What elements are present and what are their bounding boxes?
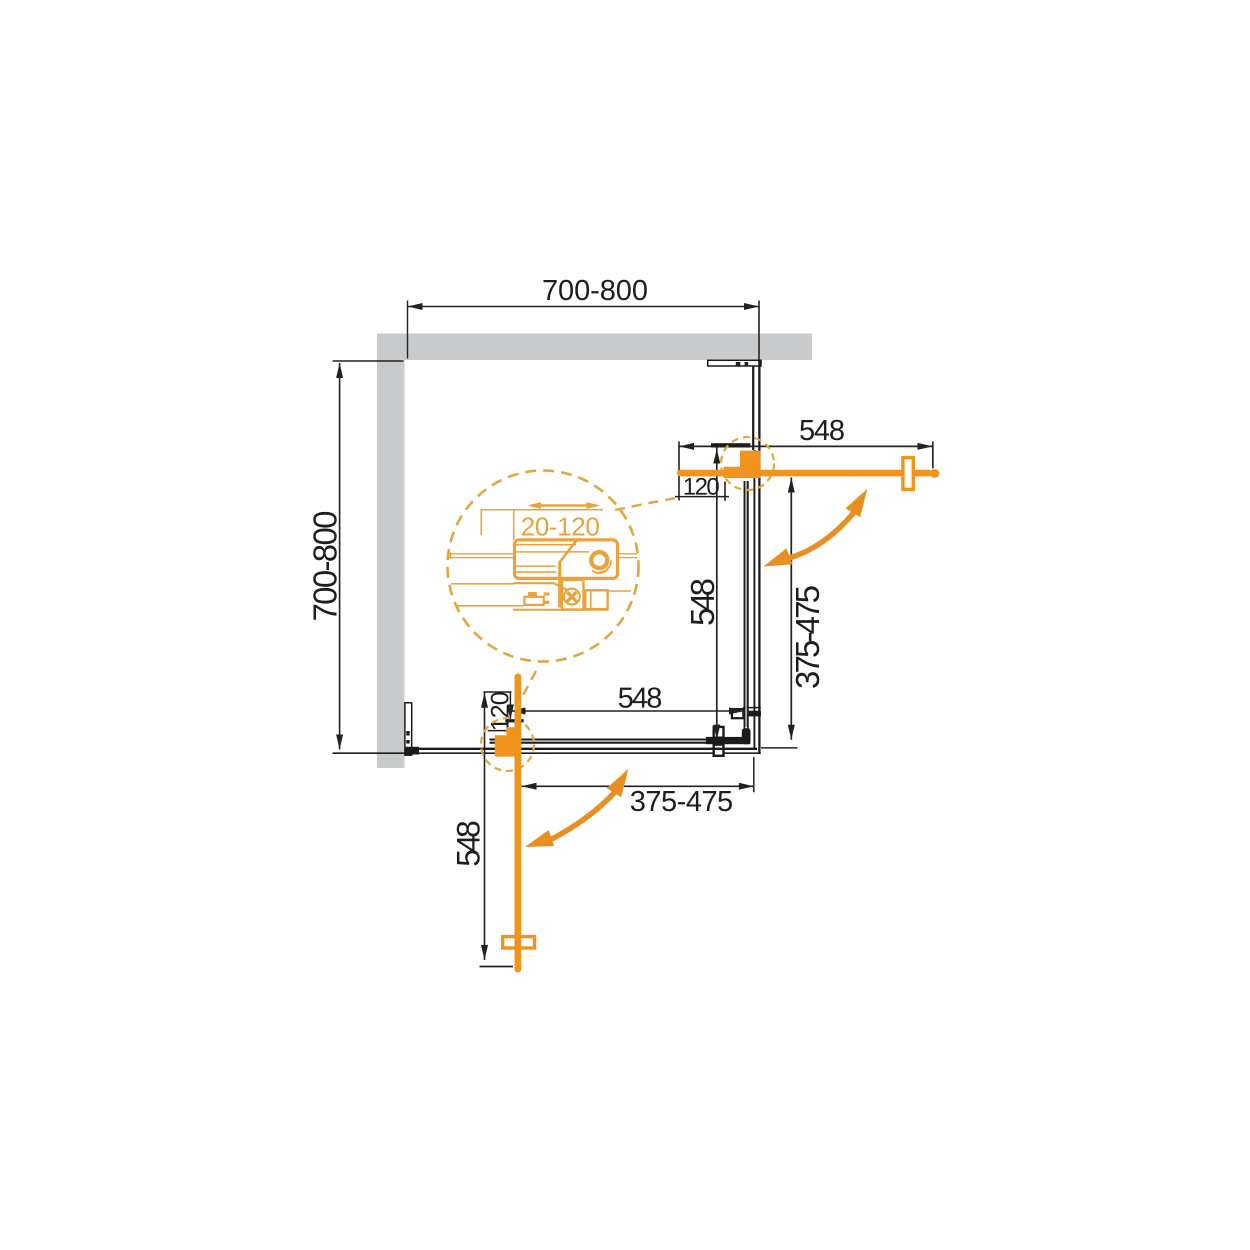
svg-text:375-475: 375-475: [789, 585, 826, 689]
svg-text:548: 548: [684, 578, 721, 626]
svg-text:20-120: 20-120: [521, 511, 600, 541]
svg-text:120: 120: [683, 474, 720, 501]
svg-text:700-800: 700-800: [307, 511, 344, 622]
svg-text:120: 120: [487, 691, 515, 731]
svg-text:548: 548: [799, 415, 845, 447]
svg-text:375-475: 375-475: [630, 786, 733, 818]
svg-text:700-800: 700-800: [542, 275, 648, 307]
svg-text:548: 548: [618, 683, 663, 715]
svg-text:548: 548: [451, 820, 487, 867]
